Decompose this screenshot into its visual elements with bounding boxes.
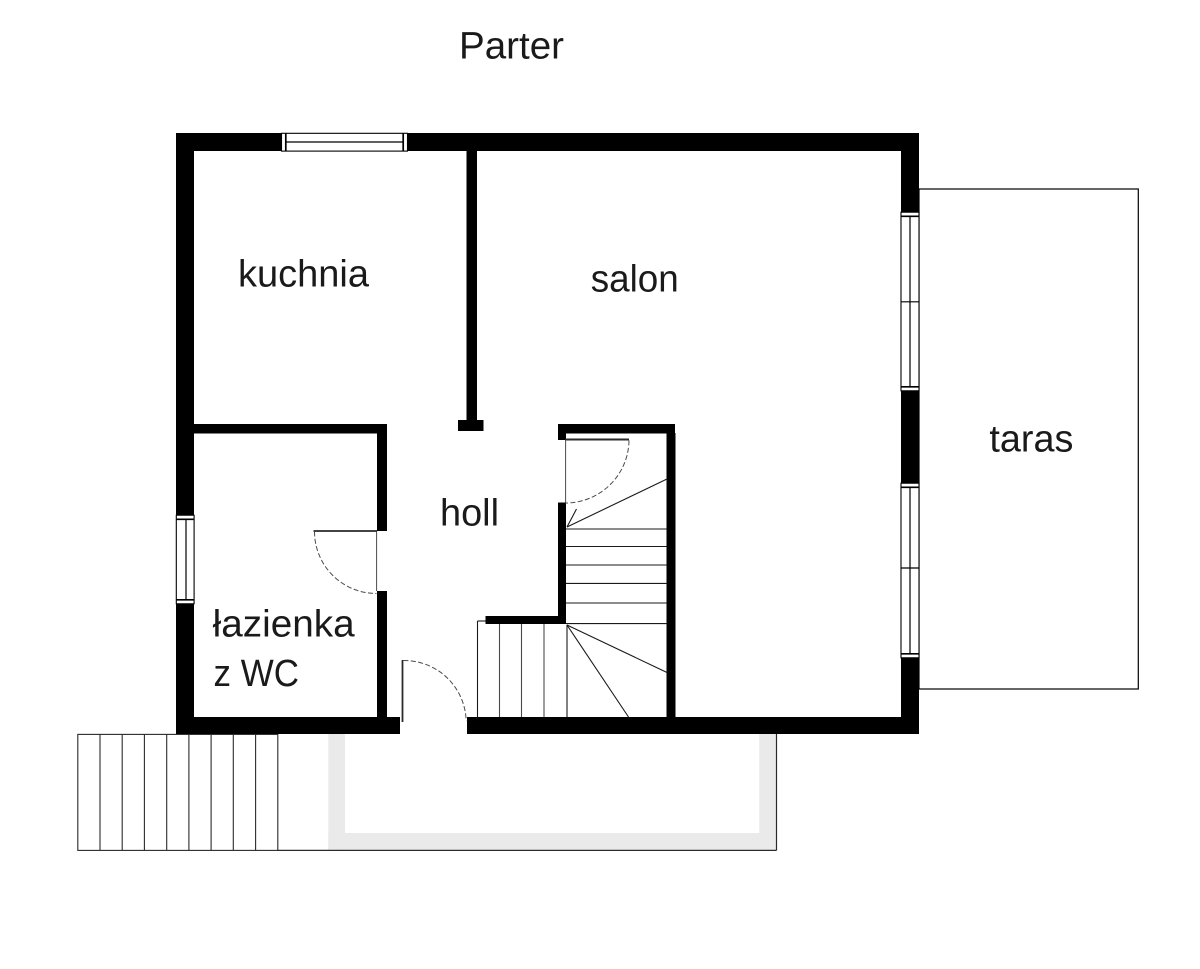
- svg-text:z WC: z WC: [214, 653, 300, 695]
- svg-text:taras: taras: [989, 418, 1073, 460]
- svg-text:kuchnia: kuchnia: [238, 254, 370, 296]
- svg-text:salon: salon: [591, 258, 679, 300]
- svg-text:Parter: Parter: [459, 25, 564, 67]
- svg-text:łazienka: łazienka: [213, 604, 356, 646]
- svg-text:holl: holl: [440, 493, 499, 535]
